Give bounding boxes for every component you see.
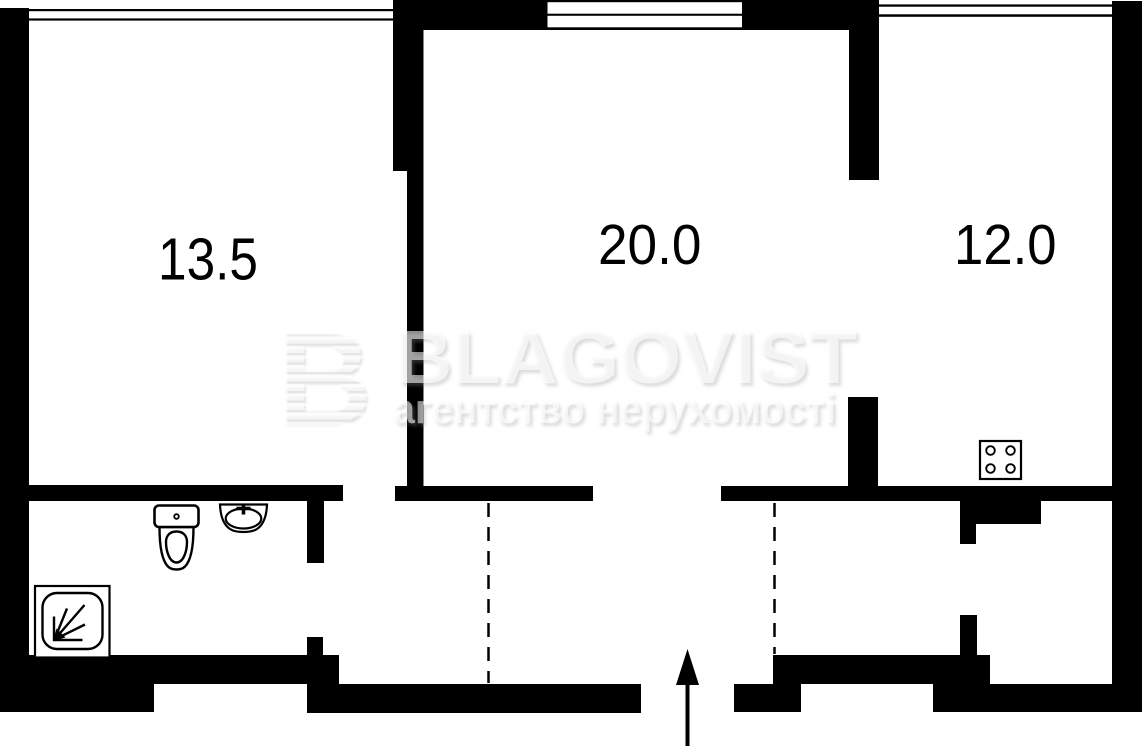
svg-text:13.5: 13.5	[158, 227, 258, 293]
svg-text:20.0: 20.0	[598, 213, 702, 277]
svg-text:12.0: 12.0	[954, 213, 1057, 277]
svg-text:агентство нерухомості: агентство нерухомості	[393, 385, 836, 432]
